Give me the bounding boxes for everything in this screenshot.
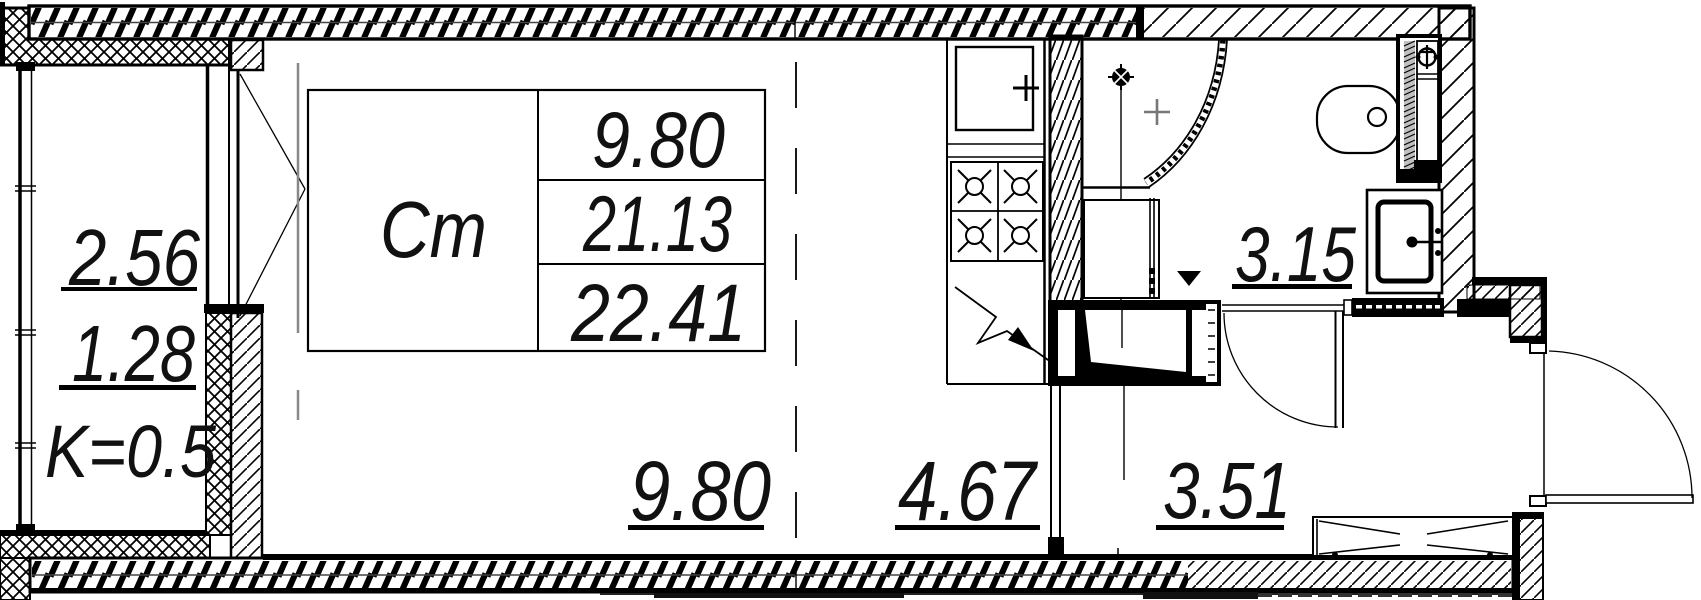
svg-text:1.28: 1.28: [72, 309, 195, 398]
svg-text:9.80: 9.80: [592, 95, 725, 184]
svg-text:4.67: 4.67: [898, 444, 1039, 538]
svg-text:Ст: Ст: [380, 185, 487, 274]
svg-text:3.51: 3.51: [1163, 446, 1291, 535]
svg-text:K=0.5: K=0.5: [45, 410, 217, 493]
svg-text:22.41: 22.41: [570, 268, 746, 359]
svg-text:9.80: 9.80: [630, 444, 771, 538]
svg-text:21.13: 21.13: [582, 179, 732, 268]
